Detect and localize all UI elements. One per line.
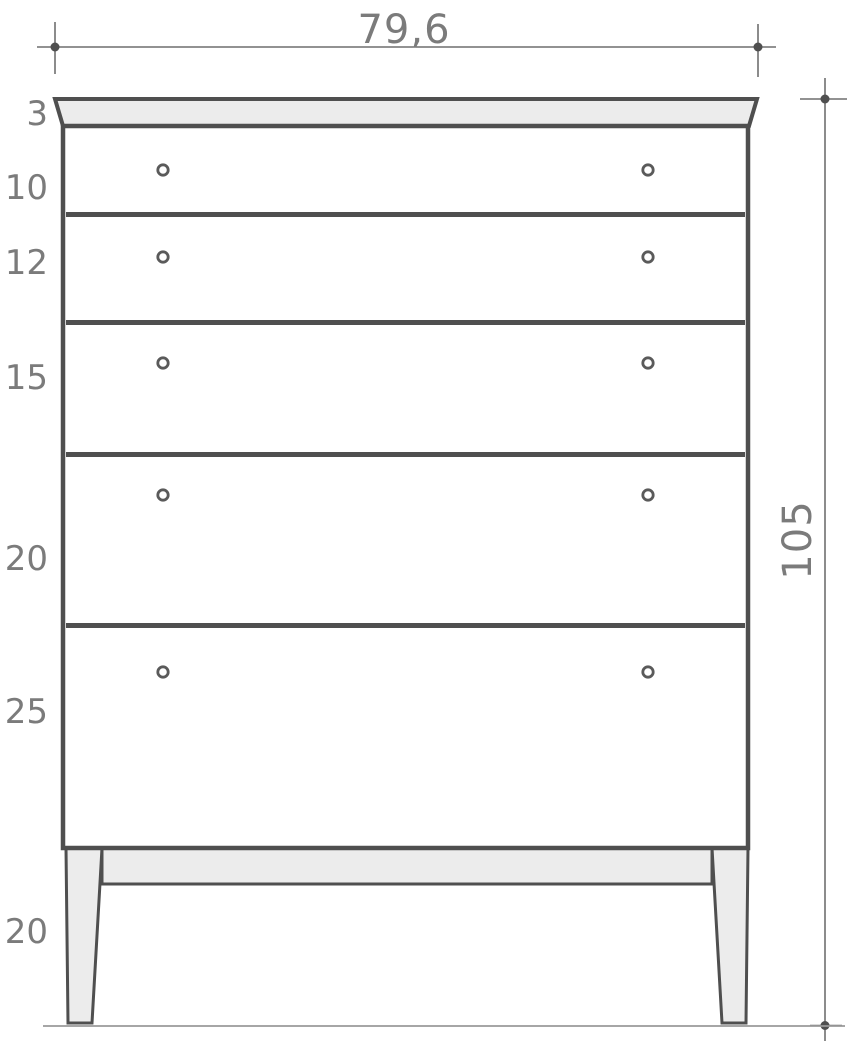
furniture-dimension-drawing: 79,6 105	[0, 0, 851, 1043]
leg-height-label: 20	[5, 912, 48, 952]
drawer-knob-icon	[643, 252, 653, 262]
section-height-labels: 3 10 12 15 20 25 20	[5, 94, 48, 952]
dimension-endpoint-dot-icon	[754, 43, 763, 52]
drawer-4-height-label: 20	[5, 539, 48, 579]
dimension-endpoint-dot-icon	[821, 95, 830, 104]
dimension-endpoint-dot-icon	[51, 43, 60, 52]
overall-height-label: 105	[775, 500, 821, 579]
drawer-knob-icon	[643, 490, 653, 500]
drawer-2-height-label: 12	[5, 243, 48, 283]
drawer-knob-icon	[643, 358, 653, 368]
top-panel	[55, 99, 757, 126]
drawer-1-height-label: 10	[5, 168, 48, 208]
drawer-knob-icon	[158, 252, 168, 262]
drawer-5-height-label: 25	[5, 692, 48, 732]
chest-of-drawers	[55, 99, 757, 1023]
drawer-knob-icon	[158, 165, 168, 175]
drawer-knob-icon	[158, 358, 168, 368]
drawer-knob-icon	[158, 490, 168, 500]
left-leg	[66, 848, 102, 1023]
cabinet-body	[63, 126, 748, 848]
drawer-3-height-label: 15	[5, 358, 48, 398]
drawing-canvas: 79,6 105	[0, 0, 851, 1043]
apron	[102, 847, 712, 884]
height-dimension: 105	[775, 78, 847, 1041]
right-leg	[712, 848, 748, 1023]
drawer-knob-icon	[643, 165, 653, 175]
top-panel-thickness-label: 3	[26, 94, 48, 134]
width-dimension: 79,6	[37, 7, 776, 77]
drawer-knob-icon	[158, 667, 168, 677]
overall-width-label: 79,6	[357, 7, 450, 53]
drawer-knob-icon	[643, 667, 653, 677]
